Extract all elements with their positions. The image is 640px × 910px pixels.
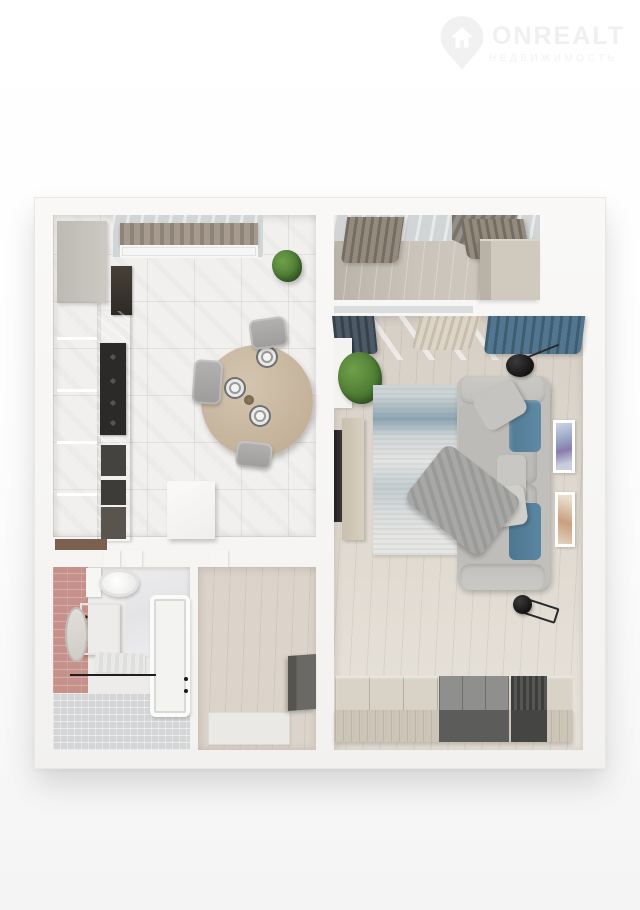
- bathroom-mirror: [65, 607, 88, 662]
- storage-bench-top: [335, 676, 573, 710]
- plate: [249, 405, 271, 427]
- room-kitchen: [53, 215, 316, 537]
- wall-art-canvas: [556, 423, 572, 470]
- towel: [95, 652, 146, 674]
- hallway-mat: [208, 712, 290, 745]
- apartment-floorplan: [35, 198, 605, 768]
- corner-counter-top: [55, 539, 107, 550]
- kitchen-window-frame: [120, 245, 258, 258]
- dining-chair: [235, 440, 274, 470]
- bench-front-dark: [511, 710, 547, 742]
- sofa: [457, 376, 550, 590]
- living-window-band: [334, 303, 473, 316]
- storage-bench-front: [335, 710, 573, 742]
- kitchen-drawers: [101, 445, 126, 505]
- balcony-cabinet: [480, 239, 540, 300]
- tub-handle-dot: [184, 677, 188, 681]
- washing-machine-box: [167, 481, 215, 539]
- tv: [334, 430, 342, 522]
- kitchen-window-pelmet: [120, 223, 258, 245]
- wall-art-canvas: [558, 495, 572, 544]
- wall-art-frame: [553, 420, 575, 473]
- bench-front-dark: [439, 710, 509, 742]
- towel-bar: [70, 674, 156, 676]
- living-curtain-sheer: [411, 316, 481, 350]
- room-living: [334, 316, 583, 750]
- tub-handle-dot: [184, 689, 188, 693]
- living-curtain-right: [484, 316, 586, 354]
- kitchen-plant: [272, 250, 302, 282]
- house-pin-icon: [436, 14, 488, 72]
- wall-art-frame: [555, 492, 575, 547]
- room-hallway: [198, 567, 316, 750]
- plate: [224, 377, 246, 399]
- bench-dark-slat-section: [511, 676, 547, 710]
- cooktop: [100, 343, 126, 435]
- kitchen-upper-cabinet: [57, 221, 107, 303]
- balcony-curtain-left: [341, 217, 404, 263]
- floorplan-render: ONREALT НЕДВИЖИМОСТЬ: [0, 0, 640, 910]
- watermark-brand: ONREALT: [492, 22, 625, 51]
- built-in-oven-column: [111, 266, 132, 315]
- bathtub: [150, 595, 190, 717]
- bench-gray-section: [439, 676, 509, 710]
- shoe-cabinet: [288, 654, 316, 711]
- sofa-armrest-bottom: [460, 564, 545, 590]
- desk-lamp: [513, 595, 532, 614]
- floor-lamp: [506, 354, 534, 377]
- watermark-subtitle: НЕДВИЖИМОСТЬ: [489, 53, 618, 64]
- toilet-bowl: [99, 569, 139, 597]
- room-balcony: [334, 215, 540, 300]
- tv-bench: [342, 418, 364, 540]
- room-bathroom: [53, 567, 190, 750]
- kitchen-tall-cabinet: [57, 303, 97, 543]
- kitchen-lower-unit: [101, 507, 126, 539]
- dining-chair: [248, 316, 289, 351]
- dining-chair: [192, 359, 224, 405]
- table-centerpiece: [244, 395, 254, 405]
- watermark: ONREALT НЕДВИЖИМОСТЬ: [436, 12, 636, 72]
